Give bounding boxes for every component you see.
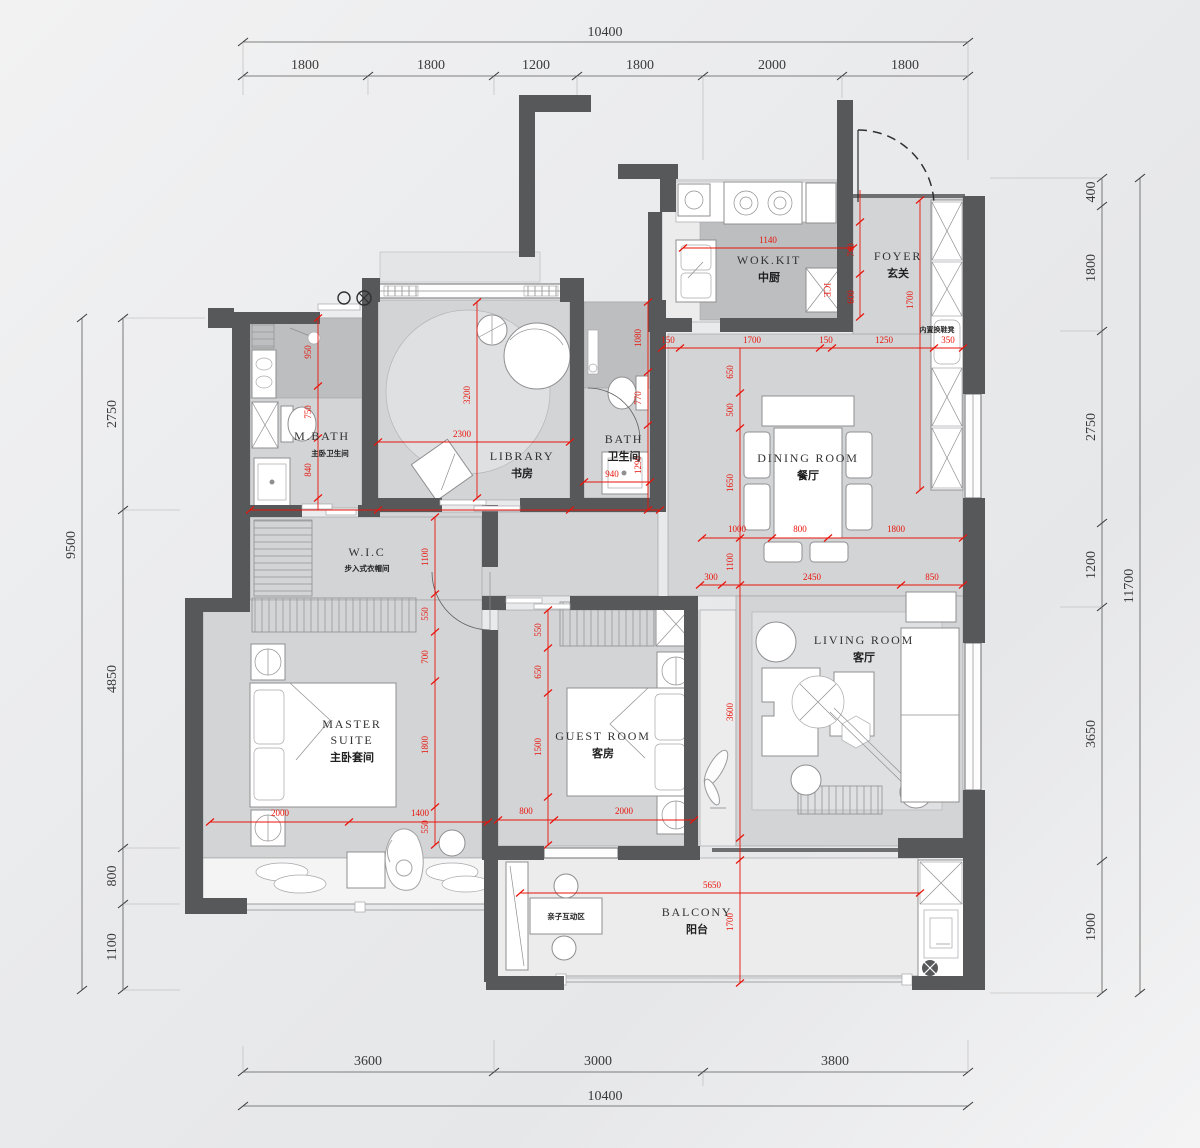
dim-right-1: 1800 [1084, 254, 1099, 282]
dim-row-guest-0: 800 [519, 806, 533, 816]
label-guest-en: GUEST ROOM [555, 729, 650, 743]
dim-top-2: 1200 [522, 58, 550, 73]
dim-row-living-2: 850 [925, 572, 939, 582]
dim-foyer-depth: 1700 [905, 291, 915, 310]
dim-top-3: 1800 [626, 58, 654, 73]
label-bath-en: BATH [605, 432, 644, 446]
label-library-en: LIBRARY [490, 449, 555, 463]
sink-bowl-2 [681, 273, 711, 298]
dim-bottom-0: 3600 [354, 1054, 382, 1069]
tv [906, 592, 956, 622]
pillow [655, 744, 685, 790]
dim-left-3: 1100 [105, 933, 120, 960]
dim-right-total: 11700 [1122, 569, 1137, 603]
library-slider [440, 500, 486, 505]
living-side-table [756, 622, 796, 662]
label-fridge: ICE [822, 283, 832, 298]
dim-library-w: 2300 [453, 429, 472, 439]
mbath-slider [326, 510, 356, 515]
dining-chair [810, 542, 848, 562]
dim-row-kitchen-5: 350 [941, 335, 955, 345]
dim-top-total: 10400 [588, 25, 623, 40]
dim-right-2: 2750 [1084, 413, 1099, 441]
label-wokkit-zh: 中厨 [758, 270, 780, 284]
dim-dining-v0: 500 [725, 403, 735, 417]
dim-mbath-2: 840 [303, 463, 313, 477]
pillow [254, 690, 284, 744]
mbath-top-slider [318, 304, 360, 310]
stool [552, 936, 576, 960]
label-bath-zh: 卫生间 [608, 449, 641, 463]
dim-top-1: 1800 [417, 58, 445, 73]
corridor-floor [700, 610, 736, 846]
label-dining-zh: 餐厅 [796, 468, 819, 482]
label-guest-zh: 客房 [591, 746, 614, 760]
floor-plan-canvas: 1140 740 600 1700 150 650 1700 150 1250 … [0, 0, 1200, 1148]
dim-top-0: 1800 [291, 58, 319, 73]
dim-right-3: 1200 [1084, 551, 1099, 579]
dim-row-dining-1: 800 [793, 524, 807, 534]
label-foyer-zh: 玄关 [887, 266, 909, 280]
window-niche [380, 252, 540, 282]
duct-shaft [252, 322, 274, 348]
dim-wic-2: 700 [420, 650, 430, 664]
kitchen-tall-unit [806, 183, 836, 223]
label-wic-en: W.I.C [348, 545, 385, 559]
label-foyer-en: FOYER [874, 249, 922, 263]
dim-row-living-1: 2450 [803, 572, 822, 582]
dim-mbath-0: 950 [303, 345, 313, 359]
guest-slider [506, 598, 542, 603]
dim-left-0: 2750 [105, 400, 120, 428]
floor-plan-drawing: 1140 740 600 1700 150 650 1700 150 1250 … [0, 0, 1200, 1148]
wic-wardrobe-left [254, 520, 312, 596]
dim-left-total: 9500 [64, 531, 79, 559]
label-wic-zh: 步入式衣帽间 [345, 563, 390, 573]
dim-right-5: 1900 [1084, 913, 1099, 941]
dim-row-kitchen-0: 150 [661, 335, 675, 345]
dim-top-4: 2000 [758, 58, 786, 73]
label-kids-zone: 亲子互动区 [547, 911, 585, 921]
dim-bath-w: 940 [605, 469, 619, 479]
person-figure [385, 829, 423, 890]
dim-kitchen-d1: 740 [846, 243, 856, 257]
label-dining-en: DINING ROOM [757, 451, 858, 465]
dim-top-5: 1800 [891, 58, 919, 73]
sink-bowl-1 [681, 245, 711, 270]
label-balcony-zh: 阳台 [686, 922, 708, 936]
label-balcony-en: BALCONY [662, 905, 733, 919]
pillow [655, 694, 685, 740]
dining-bench [762, 396, 854, 426]
dim-row-kitchen-4: 1250 [875, 335, 894, 345]
dim-bottom-total: 10400 [588, 1089, 623, 1104]
dining-chair [764, 542, 802, 562]
dim-left-2: 800 [105, 866, 120, 887]
label-master-en1: MASTER [322, 717, 381, 731]
kitchen-small-sink [678, 184, 710, 216]
dim-row-dining-2: 1800 [887, 524, 906, 534]
balcony-glazing [556, 974, 918, 985]
laundry-cabinet [918, 860, 964, 982]
dining-chair [744, 484, 770, 530]
label-living-en: LIVING ROOM [814, 633, 914, 647]
dim-kitchen-d2: 600 [846, 290, 856, 304]
stool [554, 874, 578, 898]
stool [791, 765, 821, 795]
mbath-counter [252, 350, 276, 398]
dim-guest-2: 1500 [533, 738, 543, 757]
dim-guest-0: 550 [533, 623, 543, 637]
dining-chair [846, 484, 872, 530]
dim-row-kitchen-3: 150 [819, 335, 833, 345]
dim-row-living-0: 300 [704, 572, 718, 582]
wic-wardrobe-long [252, 598, 416, 632]
dim-hall-v: 1100 [725, 553, 735, 571]
gas-stove [724, 182, 802, 224]
dim-balcony-width: 5650 [703, 880, 722, 890]
dim-living-v: 3600 [725, 703, 735, 722]
plumbing-riser-icon [338, 292, 350, 304]
dim-master-v: 1800 [420, 736, 430, 755]
dim-mbath-1: 750 [303, 405, 313, 419]
pillow [254, 748, 284, 800]
dim-right-4: 3650 [1084, 720, 1099, 748]
dim-row-guest-1: 2000 [615, 806, 634, 816]
label-shoe-bench: 内置换鞋凳 [920, 325, 956, 334]
foyer-shoe-cabinet [931, 200, 963, 490]
dim-kitchen-width: 1140 [759, 235, 777, 245]
label-mbath-en: M.BATH [294, 429, 350, 443]
label-living-zh: 客厅 [852, 650, 875, 664]
dim-row-master-0: 2000 [271, 808, 290, 818]
dim-row-kitchen-1: 650 [725, 365, 735, 379]
label-library-zh: 书房 [511, 466, 533, 480]
dim-guest-1: 650 [533, 665, 543, 679]
dim-library-v: 3200 [462, 386, 472, 405]
dim-bath-0: 1080 [633, 329, 643, 348]
label-master-zh: 主卧套间 [330, 750, 374, 764]
stool [439, 830, 465, 856]
dim-wic-0: 1100 [420, 548, 430, 566]
dining-table [774, 428, 842, 538]
dim-dining-v1: 1650 [725, 474, 735, 493]
hanging-chair [504, 323, 570, 389]
dim-row-dining-0: 1000 [728, 524, 747, 534]
guest-balcony-door [544, 848, 618, 858]
dim-row-master-1: 1400 [411, 808, 430, 818]
seat-table [347, 852, 385, 888]
dim-left-1: 4850 [105, 665, 120, 693]
dim-bottom-2: 3800 [821, 1054, 849, 1069]
dim-bottom-1: 3000 [584, 1054, 612, 1069]
mbath-slider [302, 504, 332, 509]
dim-bath-1: 770 [633, 391, 643, 405]
label-master-en2: SUITE [331, 733, 374, 747]
dim-row-kitchen-2: 1700 [743, 335, 762, 345]
label-wokkit-en: WOK.KIT [737, 253, 801, 267]
dim-right-0: 400 [1084, 182, 1099, 203]
dim-wic-1: 550 [420, 607, 430, 621]
label-mbath-zh: 主卧卫生间 [311, 448, 349, 458]
